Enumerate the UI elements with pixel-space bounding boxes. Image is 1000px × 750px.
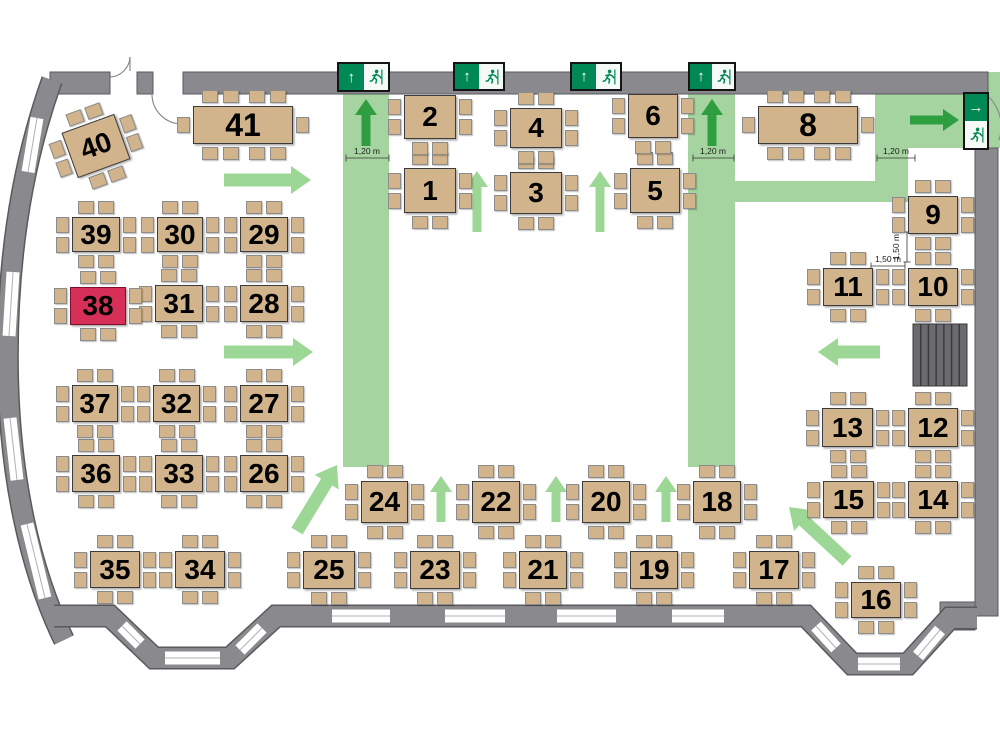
chair <box>961 502 974 518</box>
table-number: 38 <box>82 292 113 320</box>
table-group-27: 27 <box>240 385 288 422</box>
route-arrow-light <box>430 476 452 522</box>
chair <box>97 369 113 382</box>
chair <box>719 465 735 478</box>
chair <box>756 592 772 605</box>
table-number: 41 <box>225 109 261 141</box>
chair <box>78 495 94 508</box>
chair <box>744 484 757 500</box>
chair <box>246 425 262 438</box>
table-number: 36 <box>80 460 111 488</box>
chair <box>637 216 653 229</box>
table-20[interactable]: 20 <box>582 481 630 523</box>
chair <box>249 90 265 103</box>
table-number: 11 <box>833 273 863 301</box>
chair <box>614 572 627 588</box>
table-number: 26 <box>248 460 279 488</box>
table-19[interactable]: 19 <box>630 551 678 589</box>
chair <box>291 306 304 322</box>
table-10[interactable]: 10 <box>908 268 958 306</box>
chair <box>935 450 951 463</box>
table-group-9: 9 <box>908 196 958 234</box>
chair <box>117 591 133 604</box>
chair <box>850 450 866 463</box>
chair <box>878 566 894 579</box>
chair <box>545 592 561 605</box>
table-number: 5 <box>647 177 663 205</box>
chair <box>270 90 286 103</box>
chair <box>291 386 304 402</box>
table-1[interactable]: 1 <box>404 168 456 213</box>
chair <box>655 141 671 154</box>
chair <box>807 482 820 498</box>
chair <box>143 552 156 568</box>
chair <box>742 117 755 133</box>
chair <box>54 288 67 304</box>
table-group-2: 2 <box>404 95 456 139</box>
chair <box>182 591 198 604</box>
chair <box>80 271 96 284</box>
chair <box>915 465 931 478</box>
chair <box>223 90 239 103</box>
chair <box>733 552 746 568</box>
running-man-icon <box>484 68 499 86</box>
table-36[interactable]: 36 <box>72 455 120 492</box>
chair <box>121 386 134 402</box>
chair <box>807 502 820 518</box>
table-30[interactable]: 30 <box>157 217 203 252</box>
chair <box>224 476 237 492</box>
exit-sign-3: ↑ <box>570 62 622 91</box>
chair <box>892 269 905 285</box>
chair <box>291 406 304 422</box>
exit-arrow-right-icon: → <box>965 94 987 121</box>
chair <box>202 535 218 548</box>
chair <box>228 572 241 588</box>
exit-man-cell <box>965 121 987 148</box>
chair <box>478 465 494 478</box>
chair <box>206 217 219 233</box>
chair <box>100 328 116 341</box>
table-group-32: 32 <box>153 385 200 422</box>
chair <box>633 504 646 520</box>
chair <box>223 147 239 160</box>
table-16[interactable]: 16 <box>851 582 901 618</box>
chair <box>98 495 114 508</box>
table-group-12: 12 <box>908 408 958 447</box>
chair <box>612 98 625 114</box>
table-33[interactable]: 33 <box>155 455 203 492</box>
chair <box>141 217 154 233</box>
table-number: 22 <box>480 488 511 516</box>
chair <box>291 476 304 492</box>
chair <box>432 216 448 229</box>
table-number: 3 <box>528 179 544 207</box>
table-24[interactable]: 24 <box>361 481 408 523</box>
table-number: 2 <box>422 103 438 131</box>
table-group-35: 35 <box>90 551 140 588</box>
chair <box>202 591 218 604</box>
chair <box>961 410 974 426</box>
chair <box>830 309 846 322</box>
chair <box>98 439 114 452</box>
table-35[interactable]: 35 <box>90 551 140 588</box>
table-23[interactable]: 23 <box>410 551 460 589</box>
table-group-18: 18 <box>693 481 741 523</box>
chair <box>246 325 262 338</box>
chair <box>459 173 472 189</box>
exit-man-cell <box>364 64 389 90</box>
chair <box>904 582 917 598</box>
chair <box>412 142 428 155</box>
chair <box>123 476 136 492</box>
chair <box>657 216 673 229</box>
chair <box>806 410 819 426</box>
chair <box>331 592 347 605</box>
chair <box>518 151 534 164</box>
chair <box>538 92 554 105</box>
table-14[interactable]: 14 <box>908 481 958 518</box>
table-group-3: 3 <box>510 172 562 214</box>
table-group-6: 6 <box>628 94 678 138</box>
chair <box>387 526 403 539</box>
exit-sign-1: ↑ <box>337 62 390 92</box>
table-group-17: 17 <box>749 551 799 589</box>
running-man-icon <box>601 68 616 86</box>
exit-man-cell <box>479 64 503 89</box>
chair <box>565 195 578 211</box>
table-32[interactable]: 32 <box>153 385 200 422</box>
chair <box>161 439 177 452</box>
chair <box>56 237 69 253</box>
chair <box>367 526 383 539</box>
chair <box>456 484 469 500</box>
table-group-23: 23 <box>410 551 460 589</box>
table-group-20: 20 <box>582 481 630 523</box>
chair <box>224 237 237 253</box>
chair <box>311 535 327 548</box>
table-12[interactable]: 12 <box>908 408 958 447</box>
chair <box>612 118 625 134</box>
table-group-33: 33 <box>155 455 203 492</box>
chair <box>203 406 216 422</box>
chair <box>249 147 265 160</box>
table-group-39: 39 <box>72 217 120 252</box>
table-number: 4 <box>528 114 544 142</box>
table-number: 34 <box>184 556 215 584</box>
chair <box>159 552 172 568</box>
chair <box>733 572 746 588</box>
escape-route-connector-horizontal <box>735 181 908 202</box>
chair <box>291 286 304 302</box>
table-31[interactable]: 31 <box>155 285 203 322</box>
escape-route-wall-opening-right <box>988 72 1000 94</box>
table-group-22: 22 <box>472 481 520 523</box>
chair <box>767 90 783 103</box>
table-18[interactable]: 18 <box>693 481 741 523</box>
chair <box>699 465 715 478</box>
chair <box>915 252 931 265</box>
chair <box>97 535 113 548</box>
chair <box>635 141 651 154</box>
chair <box>137 406 150 422</box>
chair <box>915 237 931 250</box>
chair <box>523 504 536 520</box>
chair <box>459 193 472 209</box>
table-number: 29 <box>248 221 279 249</box>
chair <box>206 476 219 492</box>
chair <box>224 306 237 322</box>
chair <box>345 484 358 500</box>
table-group-11: 11 <box>823 268 873 306</box>
chair <box>54 308 67 324</box>
chair <box>677 504 690 520</box>
chair <box>776 535 792 548</box>
table-9[interactable]: 9 <box>908 196 958 234</box>
table-2[interactable]: 2 <box>404 95 456 139</box>
chair <box>182 255 198 268</box>
chair <box>437 592 453 605</box>
chair <box>100 271 116 284</box>
table-number: 31 <box>163 290 194 318</box>
chair <box>807 289 820 305</box>
table-number: 13 <box>832 414 863 442</box>
chair <box>861 117 874 133</box>
chair <box>203 386 216 402</box>
chair <box>681 98 694 114</box>
chair <box>802 572 815 588</box>
table-number: 40 <box>77 128 116 165</box>
table-number: 21 <box>527 556 558 584</box>
chair <box>202 90 218 103</box>
table-group-21: 21 <box>519 551 567 589</box>
chair <box>206 237 219 253</box>
chair <box>851 521 867 534</box>
exit-arrow-up-icon: ↑ <box>690 64 712 89</box>
exit-arrow-up-icon: ↑ <box>572 64 596 89</box>
chair <box>835 90 851 103</box>
route-arrow-light <box>655 476 677 522</box>
chair <box>814 147 830 160</box>
chair <box>139 456 152 472</box>
table-41[interactable]: 41 <box>193 106 293 144</box>
table-number: 37 <box>79 390 110 418</box>
table-number: 14 <box>917 486 948 514</box>
chair <box>961 197 974 213</box>
chair <box>287 572 300 588</box>
table-number: 27 <box>248 390 279 418</box>
table-number: 35 <box>99 556 130 584</box>
table-group-13: 13 <box>822 408 873 447</box>
chair <box>206 456 219 472</box>
chair <box>776 592 792 605</box>
chair <box>117 535 133 548</box>
chair <box>935 180 951 193</box>
chair <box>935 252 951 265</box>
chair <box>961 482 974 498</box>
chair <box>935 309 951 322</box>
chair <box>246 269 262 282</box>
chair <box>498 465 514 478</box>
chair <box>494 130 507 146</box>
chair <box>767 147 783 160</box>
chair <box>224 386 237 402</box>
table-number: 33 <box>163 460 194 488</box>
chair <box>478 526 494 539</box>
chair <box>246 495 262 508</box>
chair <box>518 217 534 230</box>
table-group-15: 15 <box>823 481 874 518</box>
chair <box>681 118 694 134</box>
chair <box>224 406 237 422</box>
chair <box>56 456 69 472</box>
chair <box>270 147 286 160</box>
table-6[interactable]: 6 <box>628 94 678 138</box>
door-swing-arc <box>110 57 130 77</box>
chair <box>291 456 304 472</box>
chair <box>417 535 433 548</box>
chair <box>181 325 197 338</box>
chair <box>56 217 69 233</box>
chair <box>935 521 951 534</box>
chair <box>121 406 134 422</box>
chair <box>494 195 507 211</box>
chair <box>498 526 514 539</box>
table-number: 17 <box>758 556 789 584</box>
chair <box>161 495 177 508</box>
chair <box>915 450 931 463</box>
dimension: 1,50 m <box>891 232 911 262</box>
chair <box>394 552 407 568</box>
chair <box>78 255 94 268</box>
table-number: 24 <box>369 488 400 516</box>
chair <box>876 410 889 426</box>
chair <box>98 255 114 268</box>
table-26[interactable]: 26 <box>240 455 288 492</box>
exit-sign-2: ↑ <box>453 62 505 91</box>
table-group-38: 38 <box>70 287 126 325</box>
chair <box>588 526 604 539</box>
table-group-4: 4 <box>510 108 562 148</box>
table-29[interactable]: 29 <box>240 217 288 252</box>
chair <box>246 201 262 214</box>
table-number: 18 <box>701 488 732 516</box>
table-28[interactable]: 28 <box>240 285 288 322</box>
table-group-34: 34 <box>175 551 225 588</box>
chair <box>636 592 652 605</box>
table-17[interactable]: 17 <box>749 551 799 589</box>
table-number: 32 <box>161 390 192 418</box>
chair <box>677 484 690 500</box>
table-4[interactable]: 4 <box>510 108 562 148</box>
chair <box>98 201 114 214</box>
chair <box>835 582 848 598</box>
table-25[interactable]: 25 <box>303 551 355 589</box>
exit-sign-4: ↑ <box>688 62 736 91</box>
chair <box>683 173 696 189</box>
chair <box>802 552 815 568</box>
chair <box>892 410 905 426</box>
chair <box>830 450 846 463</box>
chair <box>432 142 448 155</box>
running-man-icon <box>969 126 984 144</box>
chair <box>892 217 905 233</box>
chair <box>246 369 262 382</box>
table-3[interactable]: 3 <box>510 172 562 214</box>
route-arrow-light <box>224 166 311 194</box>
chair <box>311 592 327 605</box>
svg-text:1,20 m: 1,20 m <box>883 146 909 156</box>
chair <box>538 217 554 230</box>
exit-arrow-up-icon: ↑ <box>455 64 479 89</box>
table-38[interactable]: 38 <box>70 287 126 325</box>
table-34[interactable]: 34 <box>175 551 225 588</box>
table-number: 16 <box>860 586 891 614</box>
chair <box>177 117 190 133</box>
chair <box>566 504 579 520</box>
chair <box>538 151 554 164</box>
chair <box>129 288 142 304</box>
chair <box>892 430 905 446</box>
table-27[interactable]: 27 <box>240 385 288 422</box>
chair <box>228 552 241 568</box>
table-15[interactable]: 15 <box>823 481 874 518</box>
chair <box>56 386 69 402</box>
table-11[interactable]: 11 <box>823 268 873 306</box>
chair <box>806 430 819 446</box>
chair <box>159 425 175 438</box>
chair <box>744 504 757 520</box>
chair <box>518 92 534 105</box>
chair <box>388 193 401 209</box>
wall-right <box>975 148 998 616</box>
table-22[interactable]: 22 <box>472 481 520 523</box>
table-number: 6 <box>645 102 661 130</box>
chair <box>614 193 627 209</box>
chair <box>139 476 152 492</box>
chair <box>525 535 541 548</box>
table-8[interactable]: 8 <box>758 106 858 144</box>
exit-arrow-up-icon: ↑ <box>339 64 364 90</box>
table-13[interactable]: 13 <box>822 408 873 447</box>
chair <box>159 572 172 588</box>
table-number: 23 <box>419 556 450 584</box>
svg-text:1,20 m: 1,20 m <box>354 146 380 156</box>
chair <box>878 621 894 634</box>
table-39[interactable]: 39 <box>72 217 120 252</box>
table-37[interactable]: 37 <box>72 385 118 422</box>
table-number: 19 <box>638 556 669 584</box>
chair <box>788 147 804 160</box>
chair <box>835 147 851 160</box>
chair <box>162 201 178 214</box>
chair <box>182 535 198 548</box>
chair <box>80 328 96 341</box>
chair <box>699 526 715 539</box>
chair <box>296 117 309 133</box>
chair <box>935 465 951 478</box>
chair <box>331 535 347 548</box>
chair <box>161 325 177 338</box>
chair <box>266 495 282 508</box>
table-21[interactable]: 21 <box>519 551 567 589</box>
table-group-10: 10 <box>908 268 958 306</box>
chair <box>266 369 282 382</box>
chair <box>636 535 652 548</box>
table-5[interactable]: 5 <box>630 168 680 213</box>
table-group-14: 14 <box>908 481 958 518</box>
chair <box>463 572 476 588</box>
